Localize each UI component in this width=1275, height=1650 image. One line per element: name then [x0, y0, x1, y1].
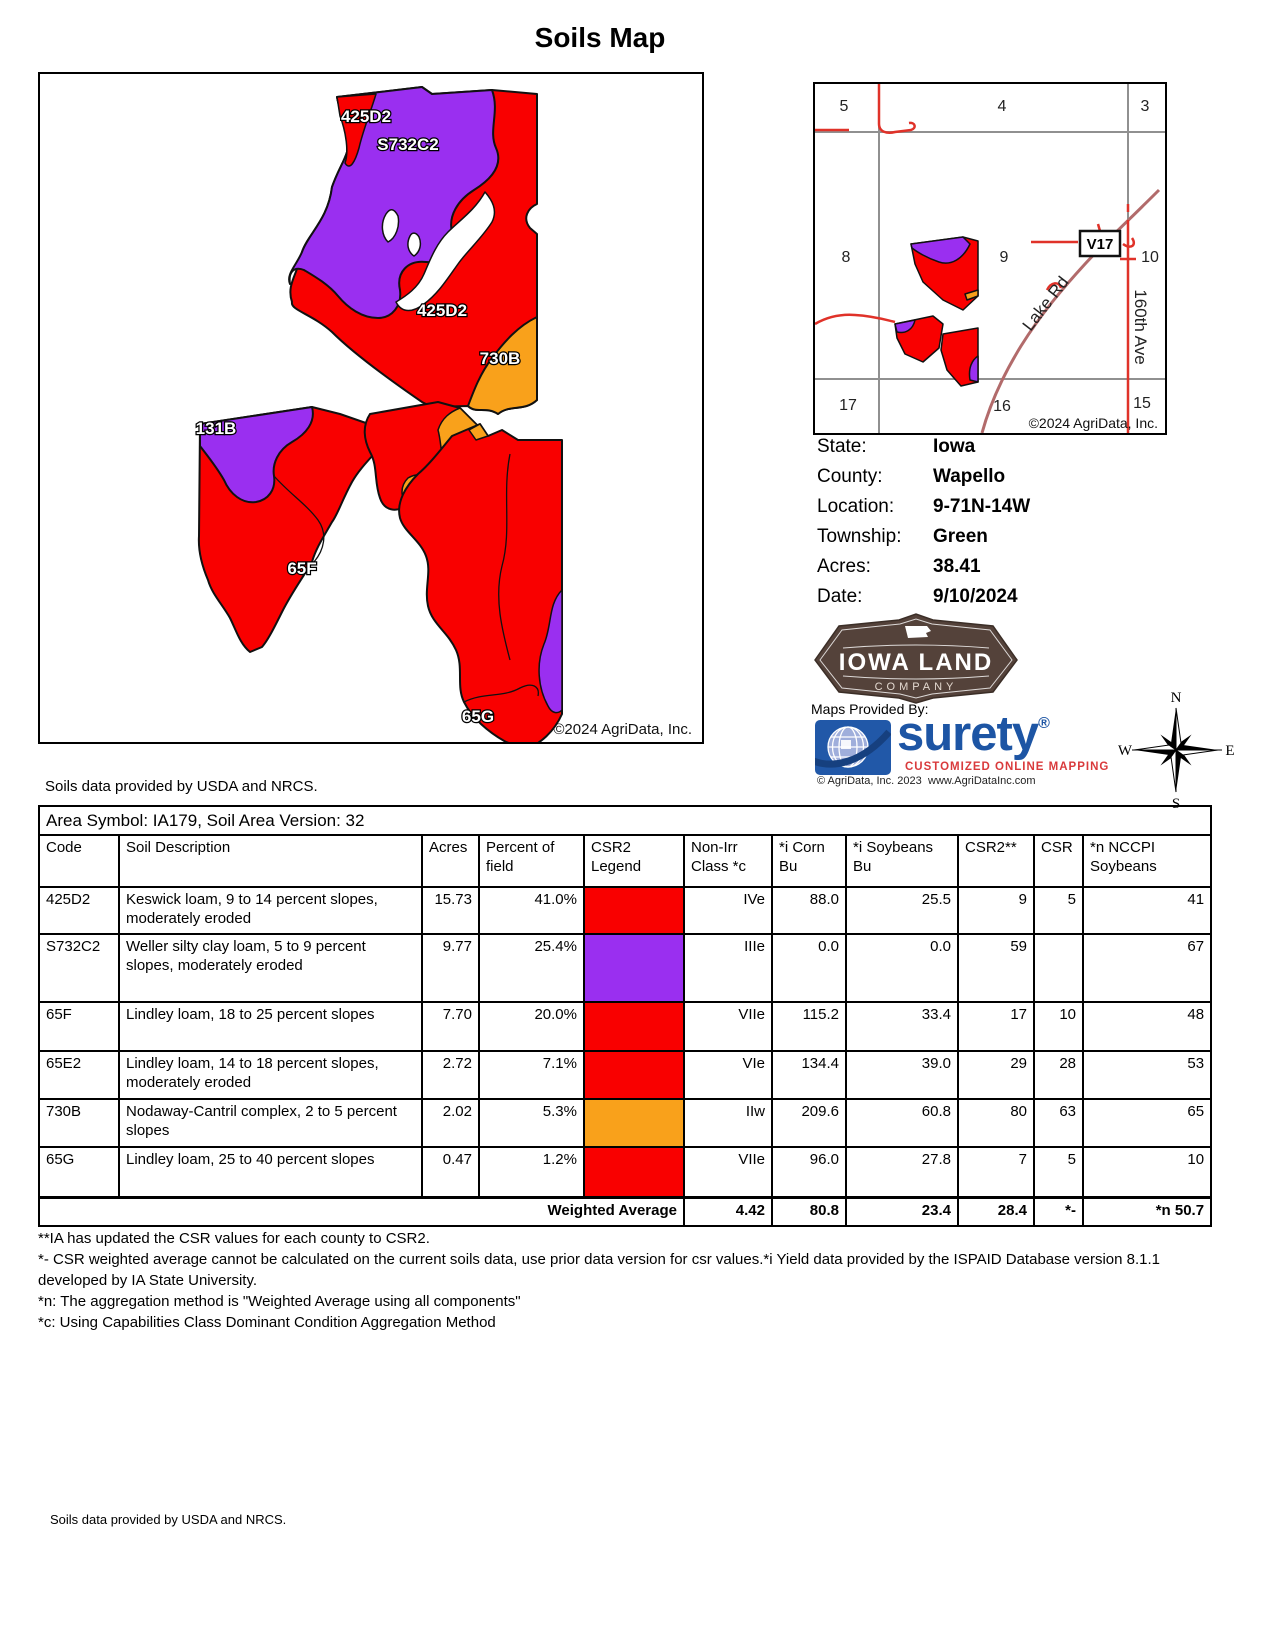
cell-csr2: 80 — [958, 1099, 1034, 1147]
soils-table: Area Symbol: IA179, Soil Area Version: 3… — [38, 805, 1212, 1227]
info-value: 38.41 — [933, 556, 981, 577]
cell-soybeans: 27.8 — [846, 1147, 958, 1197]
locator-copyright: ©2024 AgriData, Inc. — [1029, 415, 1158, 431]
col-header-soybeans: *i Soybeans Bu — [846, 835, 958, 887]
bottom-soils-data-note: Soils data provided by USDA and NRCS. — [50, 1512, 286, 1527]
cell-acres: 9.77 — [422, 934, 479, 1002]
table-row: 730B Nodaway-Cantril complex, 2 to 5 per… — [39, 1099, 1211, 1147]
info-label: State: — [817, 436, 933, 458]
cell-nccpi: 41 — [1083, 887, 1211, 934]
section-grid — [815, 84, 1165, 433]
cell-nccpi: 48 — [1083, 1002, 1211, 1051]
map-copyright: ©2024 AgriData, Inc. — [553, 721, 692, 738]
wavg-nonirr: 4.42 — [684, 1197, 772, 1226]
cell-csr: 63 — [1034, 1099, 1083, 1147]
compass-rose: N S W E — [1118, 690, 1238, 817]
cell-percent: 20.0% — [479, 1002, 584, 1051]
info-value: 9/10/2024 — [933, 586, 1018, 607]
table-area-symbol-row: Area Symbol: IA179, Soil Area Version: 3… — [39, 806, 1211, 835]
col-header-nonirr: Non-Irr Class *c — [684, 835, 772, 887]
section-17: 17 — [839, 397, 857, 414]
cell-corn: 115.2 — [772, 1002, 846, 1051]
area-symbol: Area Symbol: IA179, Soil Area Version: 3… — [39, 806, 1211, 835]
wavg-csr: *- — [1034, 1197, 1083, 1226]
col-header-csr2: CSR2** — [958, 835, 1034, 887]
footnotes: **IA has updated the CSR values for each… — [38, 1228, 1188, 1333]
cell-code: 730B — [39, 1099, 119, 1147]
cell-corn: 209.6 — [772, 1099, 846, 1147]
col-header-description: Soil Description — [119, 835, 422, 887]
map-label-131b: 131B — [196, 419, 237, 438]
map-label-425d2-mid: 425D2 — [417, 301, 467, 320]
section-5: 5 — [840, 98, 849, 115]
cell-nccpi: 10 — [1083, 1147, 1211, 1197]
cell-csr2: 7 — [958, 1147, 1034, 1197]
cell-csr2: 59 — [958, 934, 1034, 1002]
cell-nonirr-class: VIIe — [684, 1002, 772, 1051]
cell-corn: 96.0 — [772, 1147, 846, 1197]
surety-logo-text: surety® — [897, 706, 1049, 762]
cell-description: Nodaway-Cantril complex, 2 to 5 percent … — [119, 1099, 422, 1147]
col-header-percent: Percent of field — [479, 835, 584, 887]
info-value: Green — [933, 526, 988, 547]
iowa-land-company-logo: IOWA LAND COMPANY — [811, 612, 1021, 709]
soils-map-report-page: Soils Map — [0, 0, 1275, 1650]
cell-acres: 7.70 — [422, 1002, 479, 1051]
info-row-county: County:Wapello — [817, 466, 1030, 496]
section-15: 15 — [1133, 395, 1151, 412]
wavg-csr2: 28.4 — [958, 1197, 1034, 1226]
section-16: 16 — [993, 398, 1011, 415]
wavg-soybeans: 23.4 — [846, 1197, 958, 1226]
cell-percent: 5.3% — [479, 1099, 584, 1147]
col-header-legend: CSR2 Legend — [584, 835, 684, 887]
cell-soybeans: 33.4 — [846, 1002, 958, 1051]
soils-map-panel: 425D2 S732C2 425D2 730B 131B 65F 65G ©20… — [38, 72, 704, 744]
section-3: 3 — [1141, 98, 1150, 115]
cell-description: Keswick loam, 9 to 14 percent slopes, mo… — [119, 887, 422, 934]
info-row-location: Location:9-71N-14W — [817, 496, 1030, 526]
cell-acres: 0.47 — [422, 1147, 479, 1197]
iowa-land-text: IOWA LAND — [839, 649, 993, 676]
wavg-corn: 80.8 — [772, 1197, 846, 1226]
table-row: 65G Lindley loam, 25 to 40 percent slope… — [39, 1147, 1211, 1197]
map-label-730b: 730B — [480, 349, 521, 368]
cell-acres: 2.72 — [422, 1051, 479, 1099]
field-outline-mini — [895, 237, 978, 386]
registered-mark: ® — [1038, 715, 1049, 732]
cell-percent: 25.4% — [479, 934, 584, 1002]
map-label-65g: 65G — [462, 707, 494, 726]
compass-rose-icon: N S W E — [1118, 690, 1238, 812]
cell-percent: 1.2% — [479, 1147, 584, 1197]
info-value: Iowa — [933, 436, 975, 457]
wavg-nccpi: *n 50.7 — [1083, 1197, 1211, 1226]
table-header-row: Code Soil Description Acres Percent of f… — [39, 835, 1211, 887]
table-row: 425D2 Keswick loam, 9 to 14 percent slop… — [39, 887, 1211, 934]
info-row-acres: Acres:38.41 — [817, 556, 1030, 586]
cell-csr2: 17 — [958, 1002, 1034, 1051]
section-9: 9 — [1000, 249, 1009, 266]
info-value: Wapello — [933, 466, 1005, 487]
cell-nonirr-class: VIe — [684, 1051, 772, 1099]
compass-n: N — [1171, 690, 1182, 706]
weighted-average-row: Weighted Average 4.42 80.8 23.4 28.4 *- … — [39, 1197, 1211, 1226]
compass-w: W — [1118, 743, 1133, 759]
table-row: 65F Lindley loam, 18 to 25 percent slope… — [39, 1002, 1211, 1051]
surety-copyright: © AgriData, Inc. 2023 — [817, 775, 922, 787]
cell-corn: 134.4 — [772, 1051, 846, 1099]
cell-csr2: 9 — [958, 887, 1034, 934]
cell-percent: 7.1% — [479, 1051, 584, 1099]
cell-percent: 41.0% — [479, 887, 584, 934]
cell-code: 65E2 — [39, 1051, 119, 1099]
cell-nonirr-class: IIw — [684, 1099, 772, 1147]
cell-code: S732C2 — [39, 934, 119, 1002]
cell-csr — [1034, 934, 1083, 1002]
surety-globe-icon — [815, 720, 891, 780]
iowa-land-company-text: COMPANY — [875, 681, 958, 693]
soils-data-note: Soils data provided by USDA and NRCS. — [45, 778, 318, 795]
col-header-code: Code — [39, 835, 119, 887]
footnote-aggregation: *n: The aggregation method is "Weighted … — [38, 1291, 1188, 1312]
info-label: Acres: — [817, 556, 933, 578]
cell-acres: 15.73 — [422, 887, 479, 934]
weighted-average-label: Weighted Average — [39, 1197, 684, 1226]
cell-nccpi: 53 — [1083, 1051, 1211, 1099]
cell-description: Lindley loam, 25 to 40 percent slopes — [119, 1147, 422, 1197]
cell-csr: 28 — [1034, 1051, 1083, 1099]
soils-map-drawing: 425D2 S732C2 425D2 730B 131B 65F 65G ©20… — [40, 74, 702, 742]
csr2-legend-swatch — [584, 934, 684, 1002]
cell-csr: 5 — [1034, 1147, 1083, 1197]
surety-website: www.AgriDataInc.com — [928, 775, 1036, 787]
locator-map-panel: 5 4 3 8 9 10 17 16 15 V17 Lake Rd 160th … — [813, 82, 1167, 435]
compass-e: E — [1225, 743, 1234, 759]
cell-code: 65G — [39, 1147, 119, 1197]
csr2-legend-swatch — [584, 1002, 684, 1051]
map-label-65f: 65F — [287, 559, 316, 578]
iowa-land-badge: IOWA LAND COMPANY — [811, 612, 1021, 704]
footnote-csr2: **IA has updated the CSR values for each… — [38, 1228, 1188, 1249]
table-row: S732C2 Weller silty clay loam, 5 to 9 pe… — [39, 934, 1211, 1002]
map-label-s732c2: S732C2 — [377, 135, 438, 154]
page-title: Soils Map — [0, 22, 1200, 54]
csr2-legend-swatch — [584, 1147, 684, 1197]
info-row-township: Township:Green — [817, 526, 1030, 556]
cell-soybeans: 0.0 — [846, 934, 958, 1002]
cell-acres: 2.02 — [422, 1099, 479, 1147]
cell-description: Weller silty clay loam, 5 to 9 percent s… — [119, 934, 422, 1002]
csr2-legend-swatch — [584, 887, 684, 934]
cell-code: 65F — [39, 1002, 119, 1051]
surety-tagline: CUSTOMIZED ONLINE MAPPING — [905, 761, 1109, 773]
table-row: 65E2 Lindley loam, 14 to 18 percent slop… — [39, 1051, 1211, 1099]
locator-map-drawing: 5 4 3 8 9 10 17 16 15 V17 Lake Rd 160th … — [815, 84, 1165, 433]
highway-badge-v17: V17 — [1080, 231, 1120, 256]
svg-text:V17: V17 — [1087, 236, 1114, 253]
cell-nccpi: 65 — [1083, 1099, 1211, 1147]
col-header-nccpi: *n NCCPI Soybeans — [1083, 835, 1211, 887]
footnote-capabilities: *c: Using Capabilities Class Dominant Co… — [38, 1312, 1188, 1333]
cell-nonirr-class: IVe — [684, 887, 772, 934]
cell-soybeans: 60.8 — [846, 1099, 958, 1147]
col-header-csr: CSR — [1034, 835, 1083, 887]
csr2-legend-swatch — [584, 1051, 684, 1099]
cell-nonirr-class: IIIe — [684, 934, 772, 1002]
cell-corn: 88.0 — [772, 887, 846, 934]
cell-code: 425D2 — [39, 887, 119, 934]
map-label-425d2-top: 425D2 — [341, 107, 391, 126]
info-label: Location: — [817, 496, 933, 518]
section-8: 8 — [842, 249, 851, 266]
csr2-legend-swatch — [584, 1099, 684, 1147]
soil-polygon-65g — [399, 424, 562, 742]
info-label: Date: — [817, 586, 933, 608]
info-label: Township: — [817, 526, 933, 548]
footnote-csr-weighted: *- CSR weighted average cannot be calcul… — [38, 1249, 1188, 1291]
info-label: County: — [817, 466, 933, 488]
col-header-corn: *i Corn Bu — [772, 835, 846, 887]
cell-nonirr-class: VIIe — [684, 1147, 772, 1197]
cell-description: Lindley loam, 18 to 25 percent slopes — [119, 1002, 422, 1051]
section-10: 10 — [1141, 249, 1159, 266]
col-header-acres: Acres — [422, 835, 479, 887]
white-hole — [408, 233, 420, 256]
lake-rd-label: Lake Rd — [1019, 273, 1073, 335]
160th-ave-label: 160th Ave — [1131, 289, 1150, 364]
cell-csr: 10 — [1034, 1002, 1083, 1051]
section-4: 4 — [998, 98, 1007, 115]
iowa-state-icon — [905, 626, 931, 638]
cell-nccpi: 67 — [1083, 934, 1211, 1002]
cell-description: Lindley loam, 14 to 18 percent slopes, m… — [119, 1051, 422, 1099]
cell-soybeans: 25.5 — [846, 887, 958, 934]
info-value: 9-71N-14W — [933, 496, 1030, 517]
cell-csr: 5 — [1034, 887, 1083, 934]
parcel-info: State:Iowa County:Wapello Location:9-71N… — [817, 436, 1030, 616]
cell-corn: 0.0 — [772, 934, 846, 1002]
cell-soybeans: 39.0 — [846, 1051, 958, 1099]
cell-csr2: 29 — [958, 1051, 1034, 1099]
info-row-state: State:Iowa — [817, 436, 1030, 466]
